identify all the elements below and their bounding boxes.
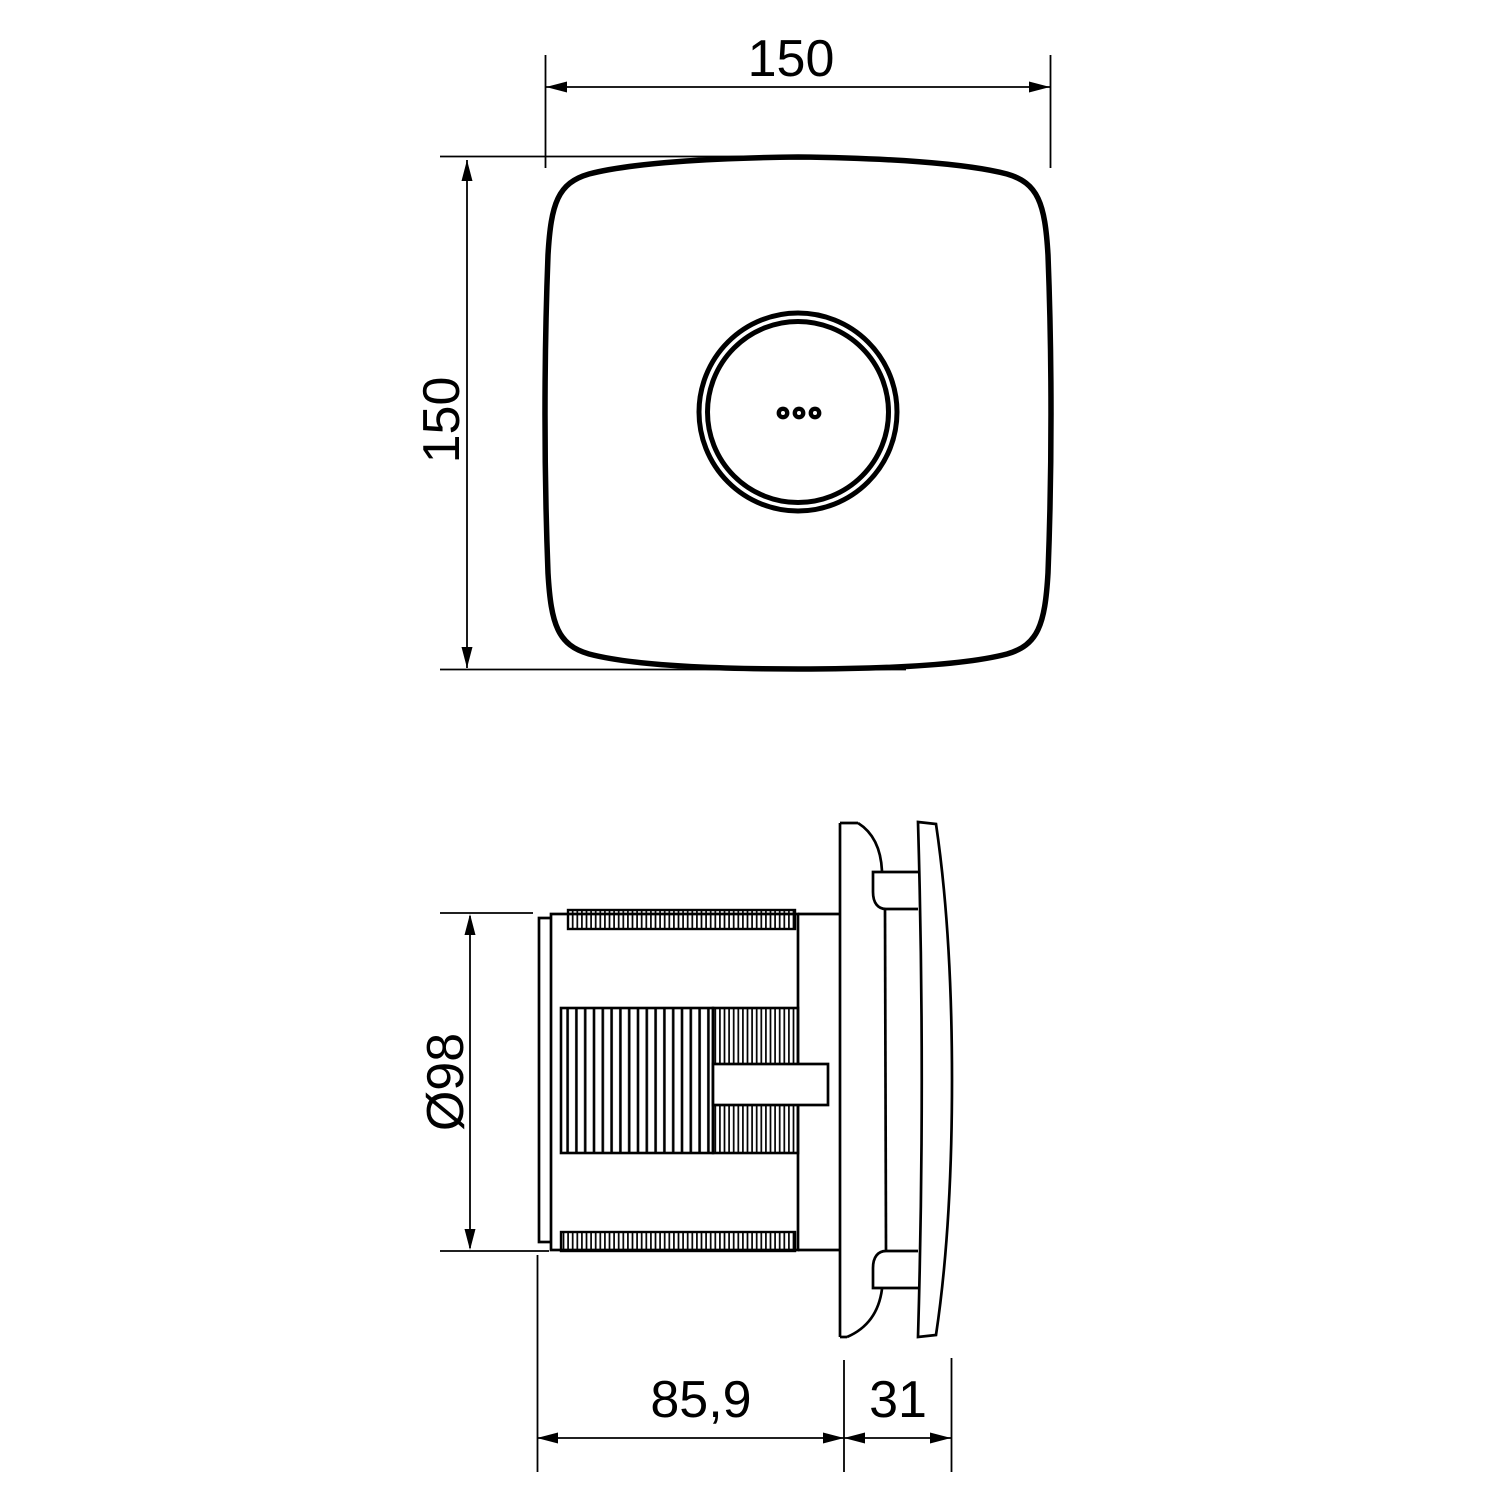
technical-drawing-page: 150 150 xyxy=(0,0,1501,1501)
indicator-dot-center xyxy=(797,411,801,415)
duct-ribs-top xyxy=(568,910,795,929)
indicator-dot-center xyxy=(781,411,785,415)
dimension-label-duct-diameter: Ø98 xyxy=(417,1033,475,1131)
technical-drawing: 150 150 xyxy=(0,0,1501,1501)
terminal-tab xyxy=(713,1064,828,1105)
dimension-label-body-depth: 85,9 xyxy=(650,1371,751,1429)
duct-ribs-bottom xyxy=(561,1232,795,1251)
indicator-dots xyxy=(777,407,822,420)
indicator-dot-center xyxy=(813,411,817,415)
dimension-label-front-height: 150 xyxy=(413,377,471,464)
dimension-label-cover-depth: 31 xyxy=(869,1371,927,1429)
plate-front-edge xyxy=(885,909,886,1251)
drawing-background xyxy=(0,0,1501,1501)
dimension-label-front-width: 150 xyxy=(748,30,835,88)
motor-ribs-coarse xyxy=(561,1008,713,1153)
